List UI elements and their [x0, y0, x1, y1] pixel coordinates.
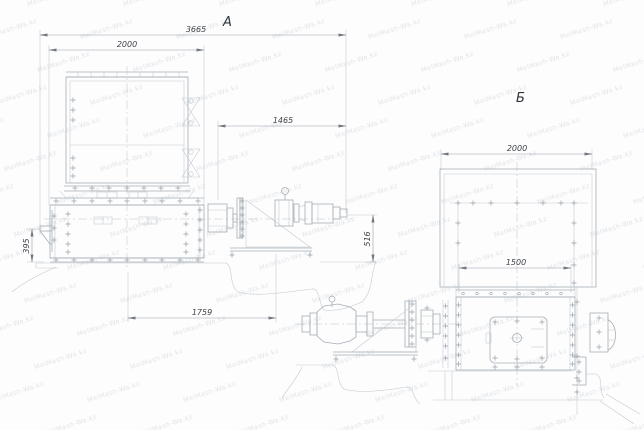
view-a-label: А [222, 15, 232, 30]
dim-tank-width: 2000 [49, 40, 204, 205]
gusset-bracket-b [352, 303, 416, 352]
tank-flange [50, 185, 204, 205]
dim-bracket-height: 395 [22, 229, 44, 262]
dim-text-516: 516 [363, 231, 372, 246]
dim-hopper-width: 2000 [441, 144, 592, 170]
dim-text-2000-a: 2000 [117, 40, 137, 49]
dim-drive-height: 516 [348, 215, 377, 262]
dim-text-3665: 3665 [186, 25, 206, 34]
drawing-canvas: А 3665 2000 1465 [0, 0, 644, 430]
dim-drive-length: 1465 [218, 116, 346, 200]
dim-base-length: 1759 [128, 254, 276, 322]
dim-text-1759: 1759 [192, 308, 212, 317]
mixing-trough [44, 205, 352, 263]
foundation-b [282, 365, 640, 424]
eyebolt-b [329, 296, 335, 302]
dim-overall-length: 3665 [40, 25, 346, 235]
housing-end-view [456, 297, 575, 370]
gusset-bracket-a [246, 200, 310, 247]
dim-text-1465: 1465 [273, 116, 293, 125]
dim-text-1500: 1500 [506, 258, 526, 267]
housing-top-flange [456, 287, 575, 297]
dim-housing-length: 1500 [459, 258, 571, 293]
view-a: А 3665 2000 1465 [12, 15, 377, 322]
tank-side-view [66, 66, 200, 270]
view-b: Б 2000 [282, 91, 640, 424]
drive-assembly-b [296, 296, 462, 368]
foundation-a [12, 262, 376, 310]
drive-assembly-a [197, 188, 347, 258]
eyebolt-a [282, 188, 289, 195]
access-door [486, 317, 547, 363]
agitator-paddle-top [182, 98, 200, 126]
view-b-label: Б [516, 91, 525, 106]
left-support-bracket [40, 210, 57, 252]
dim-text-2000-b: 2000 [507, 144, 527, 153]
hopper [440, 162, 596, 385]
agitator-paddle-bottom [182, 149, 200, 177]
dim-text-395: 395 [22, 238, 31, 253]
drawing-sheet: MelMash-Wa.kzMelMash-Wa.kzMelMash-Wa.kzM… [0, 0, 644, 430]
